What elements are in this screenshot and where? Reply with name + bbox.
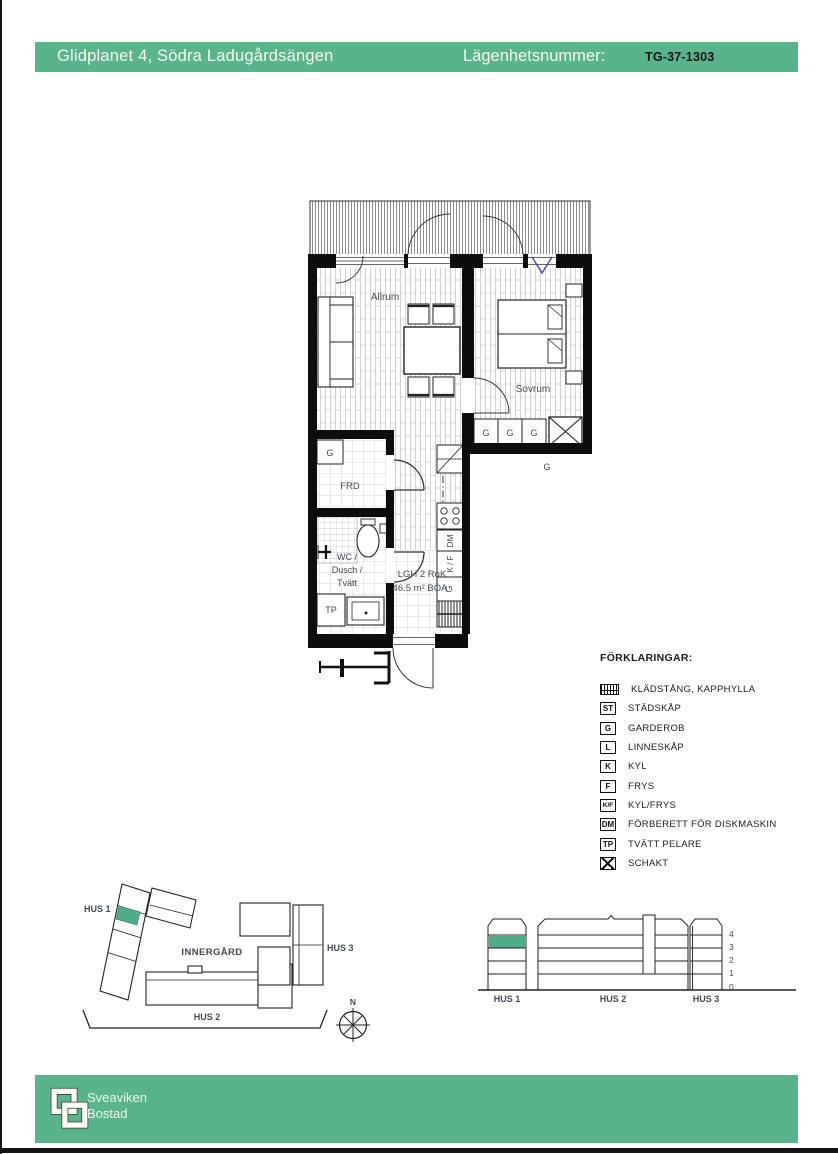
coat-rack-icon [600, 684, 619, 695]
elev-shaft [643, 915, 655, 974]
legend-label: FÖRBERETT FÖR DISKMASKIN [628, 819, 776, 830]
section-marker [320, 651, 389, 683]
site-hus2-label: HUS 2 [194, 1012, 221, 1022]
elev-hus3 [690, 919, 722, 990]
legend-label: KYL [628, 761, 647, 772]
project-title: Glidplanet 4, Södra Ladugårdsängen [57, 47, 334, 66]
storage-label: FRD [340, 481, 360, 492]
legend-title: FÖRKLARINGAR: [600, 652, 825, 664]
floor-number-4: 4 [729, 929, 734, 939]
footer-bar: Sveaviken Bostad [35, 1075, 798, 1143]
shaft-icon [600, 857, 616, 870]
closet-row-label: G [543, 462, 550, 472]
legend-row: G GARDEROB [600, 719, 825, 738]
page-bottom-border [0, 1148, 838, 1153]
floor-number-3: 3 [729, 942, 734, 952]
legend-row: SCHAKT [600, 854, 825, 873]
legend-row: L LINNESKÅP [600, 738, 825, 757]
floor-number-0: 0 [729, 982, 734, 992]
entrance-door [393, 648, 433, 688]
legend-label: FRYS [628, 781, 654, 792]
dishwasher-icon: DM [600, 818, 616, 831]
brand-line-1: Sveaviken [87, 1090, 147, 1106]
site-hus1-label: HUS 1 [84, 904, 111, 914]
site-plan: HUS 1 HUS 2 HUS 3 INNERGÅRD N [70, 875, 380, 1050]
cleaning-closet-icon: ST [600, 702, 616, 715]
legend-row: DM FÖRBERETT FÖR DISKMASKIN [600, 815, 825, 834]
brand-text: Sveaviken Bostad [87, 1090, 147, 1122]
floor-number-1: 1 [729, 968, 734, 978]
fridge-freezer-label: K / F [446, 555, 455, 572]
elev-hus1 [488, 919, 526, 990]
bedroom-label: Sovrum [516, 384, 550, 395]
legend-label: SCHAKT [628, 858, 668, 869]
freezer-icon: F [600, 780, 616, 793]
brand-line-2: Bostad [87, 1106, 147, 1122]
fridge-icon: K [600, 760, 616, 773]
washer-tower-label: TP [325, 605, 337, 615]
apartment-number: TG-37-1303 [645, 50, 714, 64]
elev-hus3-label: HUS 3 [693, 994, 720, 1004]
nightstand [566, 284, 582, 297]
floor-plan: Allrum Sovrum FRD WC / Dusch / Tvätt TP … [295, 195, 605, 695]
legend-label: STÄDSKÅP [628, 703, 681, 714]
legend-row: F FRYS [600, 776, 825, 795]
living-room-label: Allrum [371, 292, 399, 303]
closet-label-1: G [482, 428, 489, 438]
building-elevation: 4 3 2 1 0 HUS 1 HUS 2 HUS 3 [475, 910, 800, 1010]
page-left-border [0, 0, 2, 1154]
storage-wardrobe-label: G [326, 448, 333, 458]
apartment-number-label: Lägenhetsnummer: [463, 47, 605, 66]
linen-closet-icon: L [600, 741, 616, 754]
courtyard-label: INNERGÅRD [181, 947, 242, 958]
dishwasher-label: DM [445, 534, 455, 547]
washer-tower-icon: TP [600, 838, 616, 851]
floorplan-page: Glidplanet 4, Södra Ladugårdsängen Lägen… [0, 0, 838, 1154]
elev-hus2-label: HUS 2 [600, 994, 627, 1004]
fridge-freezer-icon: K/F [600, 799, 616, 812]
legend-label: KLÄDSTÅNG, KAPPHYLLA [631, 684, 755, 695]
closet-label-2: G [506, 428, 513, 438]
bathroom-label-3: Tvätt [337, 578, 358, 588]
sofa [318, 297, 353, 387]
closet-label-3: G [530, 428, 537, 438]
apartment-area-label: 46.5 m² BOA [393, 583, 449, 594]
apartment-type-label: LGH 2 RoK [398, 569, 447, 580]
bathroom-label-2: Dusch / [332, 565, 363, 575]
balcony [310, 201, 590, 256]
bathroom-label-1: WC / [337, 552, 357, 562]
elev-hus2 [538, 916, 688, 991]
nightstand [566, 371, 582, 384]
toilet [357, 525, 379, 557]
north-label: N [350, 997, 356, 1007]
legend-row: KLÄDSTÅNG, KAPPHYLLA [600, 680, 825, 699]
legend: FÖRKLARINGAR: KLÄDSTÅNG, KAPPHYLLA ST ST… [600, 652, 825, 873]
legend-label: LINNESKÅP [628, 742, 684, 753]
wardrobe-icon: G [600, 722, 616, 735]
highlighted-floor [489, 936, 525, 948]
legend-row: K KYL [600, 757, 825, 776]
stove [437, 503, 463, 529]
legend-row: ST STÄDSKÅP [600, 699, 825, 718]
elev-hus1-label: HUS 1 [494, 994, 521, 1004]
legend-label: TVÄTT PELARE [628, 839, 702, 850]
site-hus3-label: HUS 3 [327, 943, 354, 953]
legend-label: KYL/FRYS [628, 800, 676, 811]
floor-number-2: 2 [729, 955, 734, 965]
legend-row: TP TVÄTT PELARE [600, 834, 825, 853]
bedroom-closet-row [474, 417, 582, 446]
elevation-buildings [488, 915, 722, 990]
compass [336, 1008, 370, 1042]
legend-label: GARDEROB [628, 723, 685, 734]
legend-row: K/F KYL/FRYS [600, 796, 825, 815]
kitchen-wardrobe-label: G [444, 585, 454, 592]
header-bar: Glidplanet 4, Södra Ladugårdsängen Lägen… [35, 42, 798, 72]
